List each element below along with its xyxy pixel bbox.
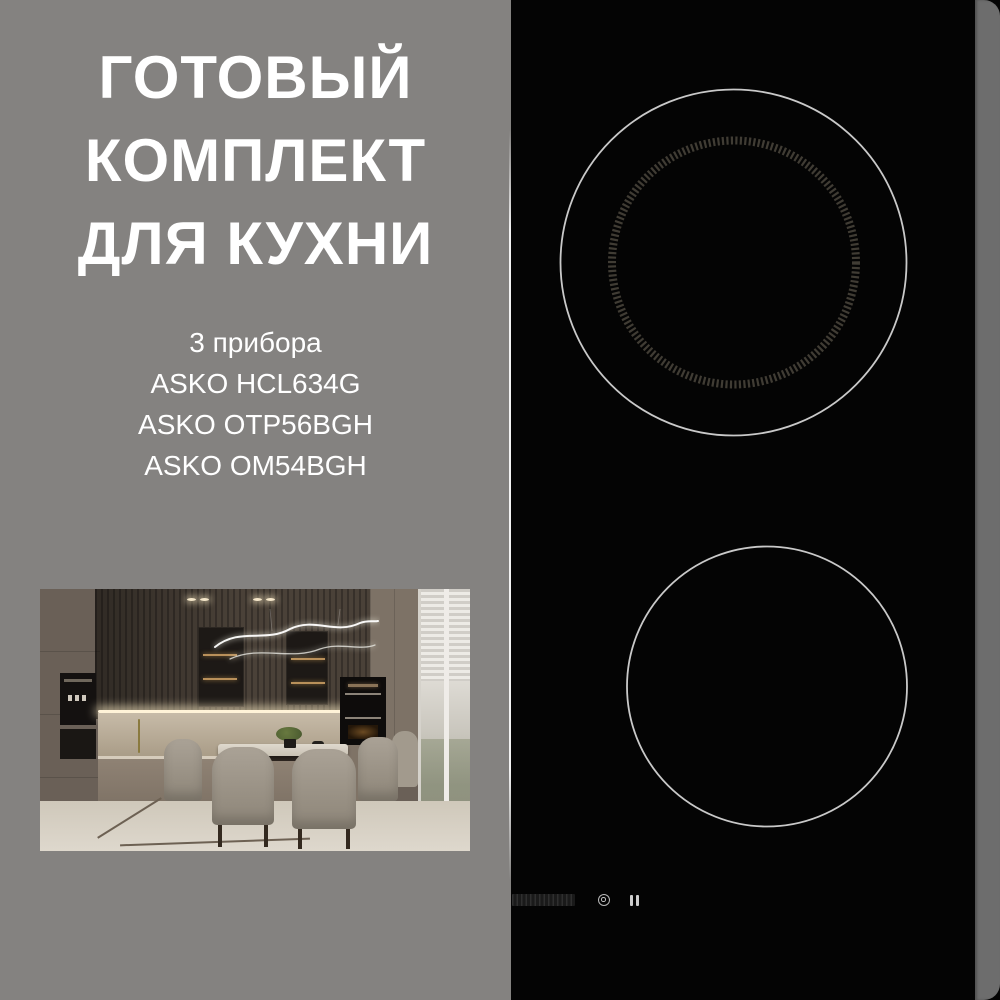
title-line-1: ГОТОВЫЙ <box>0 36 511 119</box>
oven-column <box>340 677 386 745</box>
cooktop-photo <box>511 0 1000 1000</box>
chair-right <box>358 737 398 801</box>
pause-icon <box>636 895 639 906</box>
lit-shelf <box>291 682 325 684</box>
pause-icon <box>630 895 633 906</box>
chair-leg <box>346 827 350 849</box>
top-burner-tick-ring <box>612 141 856 385</box>
burner-target-icon <box>598 894 610 906</box>
lit-shelf <box>203 678 237 680</box>
faucet <box>138 719 140 753</box>
chair-front-right <box>292 749 356 829</box>
coffee-machine-display <box>64 679 92 682</box>
chair-leg <box>264 825 268 847</box>
pendant-lamp <box>210 609 380 669</box>
coffee-cups <box>68 695 86 701</box>
page-title: ГОТОВЫЙ КОМПЛЕКТ ДЛЯ КУХНИ <box>0 36 511 285</box>
title-line-2: КОМПЛЕКТ <box>0 119 511 202</box>
touch-slider-icon <box>512 894 575 906</box>
ceiling-spot-light <box>266 598 275 601</box>
ceiling-spot-light <box>253 598 262 601</box>
chair-leg <box>298 827 302 849</box>
info-panel: ГОТОВЫЙ КОМПЛЕКТ ДЛЯ КУХНИ 3 прибора ASK… <box>0 0 511 1000</box>
appliance-count: 3 прибора <box>0 322 511 363</box>
burner-target-inner-dot <box>601 897 606 902</box>
oven-handle <box>345 693 381 695</box>
product-card: ГОТОВЫЙ КОМПЛЕКТ ДЛЯ КУХНИ 3 прибора ASK… <box>0 0 1000 1000</box>
oven-handle <box>345 717 381 719</box>
burner-rings <box>511 0 1000 1000</box>
product-model-1: ASKO HCL634G <box>0 363 511 404</box>
ceiling-spot-light <box>200 598 209 601</box>
cooktop-side-edge <box>975 0 1000 1000</box>
bottom-burner-ring <box>627 547 907 827</box>
product-model-3: ASKO OM54BGH <box>0 445 511 486</box>
chair-back-left <box>164 739 202 801</box>
built-in-appliance <box>60 729 96 759</box>
kitchen-photo <box>40 589 470 851</box>
chair-leg <box>218 825 222 847</box>
title-line-3: ДЛЯ КУХНИ <box>0 202 511 285</box>
product-list: 3 прибора ASKO HCL634G ASKO OTP56BGH ASK… <box>0 322 511 486</box>
ceiling-spot-light <box>187 598 196 601</box>
plant-pot <box>284 739 296 748</box>
chair-front-left <box>212 747 274 825</box>
product-model-2: ASKO OTP56BGH <box>0 404 511 445</box>
coffee-machine <box>60 673 96 725</box>
oven-display <box>348 684 378 687</box>
